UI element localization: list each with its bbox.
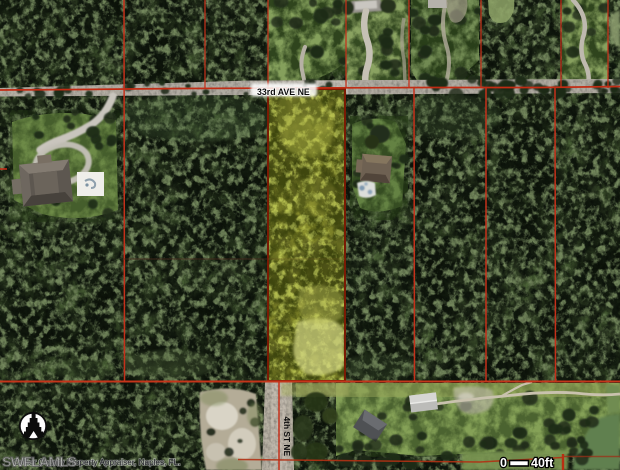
svg-text:4th ST NE: 4th ST NE	[282, 417, 292, 457]
svg-text:33rd AVE NE: 33rd AVE NE	[257, 87, 310, 97]
svg-text:SWFLAMLS: SWFLAMLS	[2, 455, 76, 470]
svg-text:40ft: 40ft	[531, 456, 554, 470]
svg-text:0: 0	[500, 456, 507, 470]
